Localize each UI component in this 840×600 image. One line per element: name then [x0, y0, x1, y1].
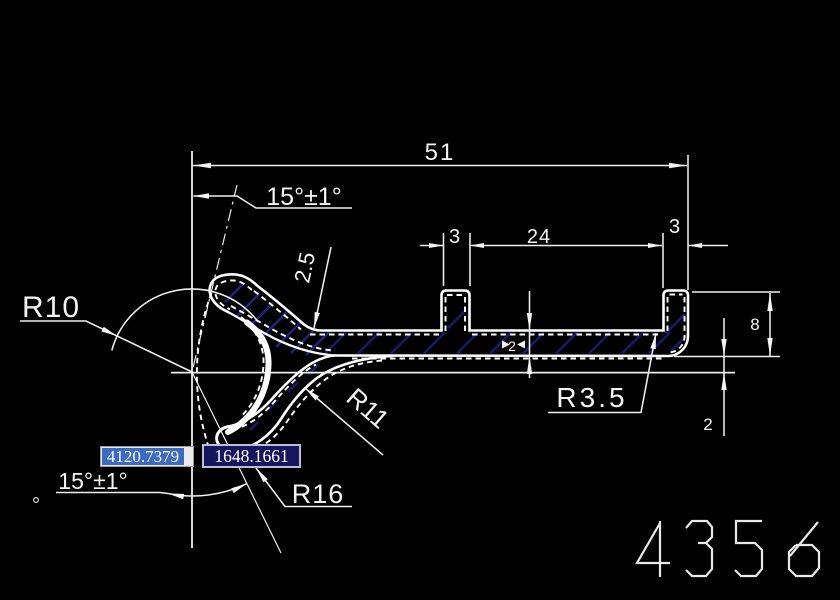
svg-text:15°±1°: 15°±1°	[266, 183, 341, 211]
svg-text:R3.5: R3.5	[556, 382, 627, 413]
svg-text:3: 3	[669, 216, 680, 238]
svg-text:15°±1°: 15°±1°	[58, 468, 127, 494]
svg-text:2: 2	[508, 338, 516, 354]
svg-text:8: 8	[750, 315, 759, 334]
svg-text:2.5: 2.5	[289, 250, 320, 285]
svg-text:3: 3	[449, 226, 460, 248]
svg-text:24: 24	[527, 226, 551, 248]
svg-text:51: 51	[425, 139, 456, 166]
svg-text:R16: R16	[292, 479, 345, 509]
svg-text:R10: R10	[22, 291, 80, 324]
svg-text:2: 2	[703, 415, 712, 434]
